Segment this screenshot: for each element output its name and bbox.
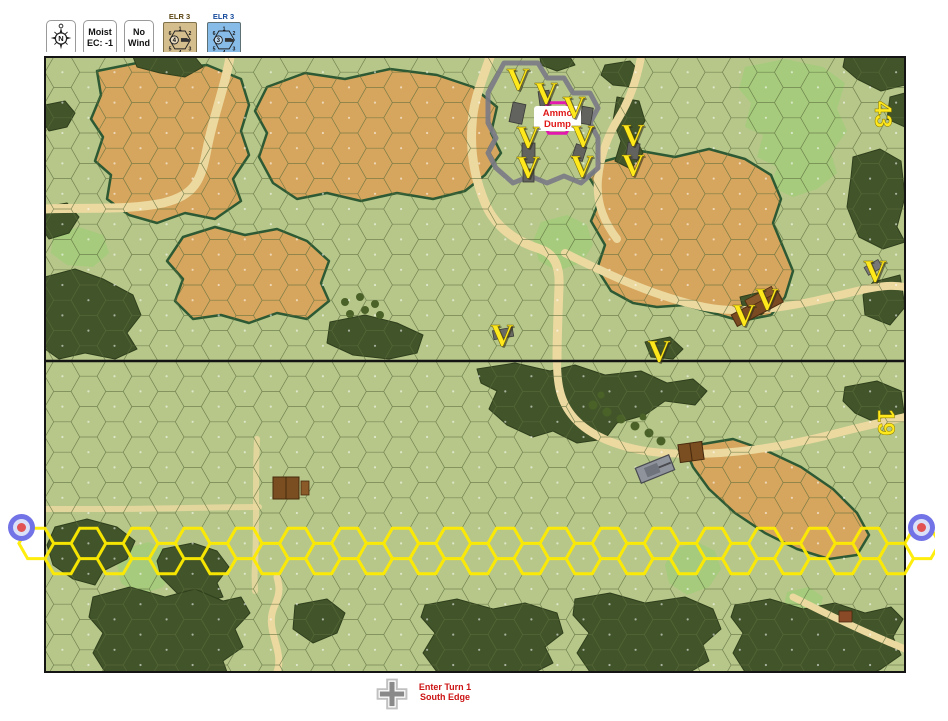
toolbar: N Moist EC: -1 No Wind ELR 3 6 1 2 5 4 3…: [46, 13, 242, 56]
turn-counter-icon: 6 1 2 5 4 3 3: [207, 22, 241, 56]
turn-value: 4: [172, 37, 176, 44]
elr-counter-label: ELR 3: [169, 13, 190, 21]
turn-entry-line1: Enter Turn 1: [404, 682, 486, 692]
svg-text:V: V: [516, 149, 539, 185]
svg-text:V: V: [570, 148, 593, 184]
truck-icon: [224, 38, 232, 42]
roundel-icon: [913, 519, 930, 536]
svg-text:V: V: [490, 317, 513, 353]
victory-hex-marker[interactable]: VV: [621, 147, 646, 185]
svg-text:1: 1: [222, 26, 225, 32]
board-number: 43: [869, 101, 896, 128]
edge-marker-left[interactable]: [8, 514, 35, 541]
svg-text:V: V: [647, 333, 670, 369]
svg-text:5: 5: [168, 46, 171, 52]
victory-hex-marker[interactable]: VV: [534, 75, 559, 113]
weather-line1: Moist: [88, 27, 112, 37]
svg-text:6: 6: [212, 31, 215, 37]
victory-hex-marker[interactable]: VV: [755, 281, 780, 319]
truck-icon: [180, 38, 188, 42]
elr-counter-axis[interactable]: ELR 3 6 1 2 5 4 3 4: [161, 13, 198, 56]
weather-line2: EC: -1: [87, 38, 113, 48]
edge-marker-right[interactable]: [908, 514, 935, 541]
svg-text:V: V: [732, 297, 755, 333]
board-number: 19: [872, 409, 899, 436]
elr-counter-allied[interactable]: ELR 3 6 1 2 5 4 3 3: [205, 13, 242, 56]
svg-text:3: 3: [232, 46, 235, 52]
victory-hex-marker[interactable]: VV: [570, 148, 595, 186]
turn-entry-note: Enter Turn 1 South Edge: [404, 682, 486, 703]
svg-text:V: V: [621, 147, 644, 183]
svg-text:V: V: [755, 281, 778, 317]
weather-button[interactable]: Moist EC: -1: [83, 20, 117, 56]
compass-button[interactable]: N: [46, 20, 76, 56]
svg-text:5: 5: [212, 46, 215, 52]
victory-hex-marker[interactable]: VV: [516, 149, 541, 187]
wind-line1: No: [133, 27, 145, 37]
victory-hex-marker[interactable]: VV: [732, 297, 757, 335]
svg-text:1: 1: [178, 26, 181, 32]
turn-counter-icon: 6 1 2 5 4 3 4: [163, 22, 197, 56]
wind-button[interactable]: No Wind: [124, 20, 154, 56]
svg-text:3: 3: [188, 46, 191, 52]
victory-hex-marker[interactable]: VV: [490, 317, 515, 355]
game-map[interactable]: Ammo Dump 43 19 VVVVVVVVVVVVVVVVVVVVVVVV…: [15, 52, 935, 677]
victory-hex-marker[interactable]: VV: [506, 61, 531, 99]
victory-hex-marker[interactable]: VV: [863, 253, 888, 291]
hut-building: [678, 441, 704, 462]
svg-text:6: 6: [168, 31, 171, 37]
svg-text:2: 2: [188, 31, 191, 37]
wind-line2: Wind: [128, 38, 150, 48]
compass-letter: N: [58, 34, 63, 43]
victory-hex-marker[interactable]: VV: [647, 333, 672, 371]
svg-text:2: 2: [232, 31, 235, 37]
turn-entry-line2: South Edge: [404, 692, 486, 702]
application-window: N Moist EC: -1 No Wind ELR 3 6 1 2 5 4 3…: [0, 0, 948, 721]
turn-value: 3: [216, 37, 220, 44]
svg-text:V: V: [534, 75, 557, 111]
svg-text:V: V: [863, 253, 886, 289]
svg-text:V: V: [506, 61, 529, 97]
elr-counter-label: ELR 3: [213, 13, 234, 21]
compass-rose-icon: N: [48, 23, 74, 53]
roundel-icon: [13, 519, 30, 536]
hut-building: [839, 611, 852, 622]
